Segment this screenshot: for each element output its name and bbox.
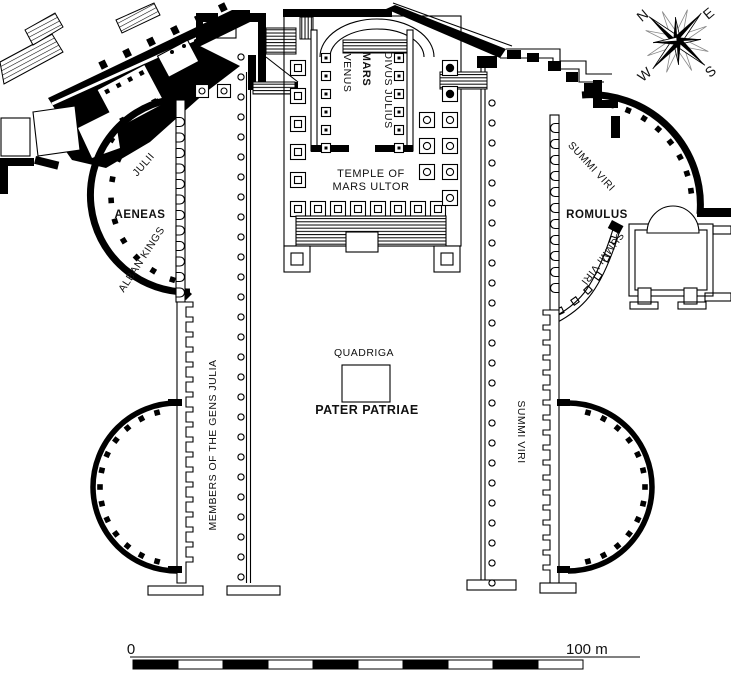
label-quadriga: QUADRIGA <box>334 347 394 359</box>
label-summi-viri-upper: SUMMI VIRI <box>565 139 617 194</box>
wall-base <box>540 583 576 593</box>
cult-statue-base <box>343 40 407 53</box>
label-julii: JULII <box>130 151 157 179</box>
compass-rose <box>646 10 709 73</box>
exedra-niches <box>97 409 160 565</box>
wall-dash <box>566 72 578 82</box>
staircase <box>266 28 296 54</box>
exedra-niches <box>584 409 647 565</box>
column-dot <box>204 54 208 58</box>
wall <box>0 158 34 166</box>
label-venus: VENUS <box>341 54 353 93</box>
label-summi-viri-lower: SUMMI VIRI <box>578 229 626 287</box>
wall-base <box>148 586 203 595</box>
scale-end-label: 100 m <box>566 641 608 658</box>
label-gens-julia: MEMBERS OF THE GENS JULIA <box>207 360 219 531</box>
niched-wall <box>177 302 193 583</box>
scale-bar-segments <box>133 660 583 669</box>
hatched-structure <box>116 3 160 33</box>
label-pater-patriae: PATER PATRIAE <box>315 403 419 417</box>
compass-west-label: W <box>634 63 655 84</box>
altar <box>346 232 378 252</box>
label-aeneas: AENEAS <box>115 209 166 221</box>
room <box>1 118 30 156</box>
wall <box>697 208 731 217</box>
temple-of-mars-ultor <box>283 9 487 272</box>
northwest-building-complex <box>0 2 250 194</box>
forum-augustus-plan: VENUS MARS DIVUS JULIUS TEMPLE OF MARS U… <box>0 0 731 673</box>
room <box>33 106 80 156</box>
corner-pedestal <box>284 246 310 272</box>
label-divus-julius: DIVUS JULIUS <box>382 51 394 128</box>
label-summi-viri-portico: SUMMI VIRI <box>515 400 527 463</box>
central-monument <box>342 365 390 402</box>
scale-start-label: 0 <box>127 641 135 658</box>
niched-wall <box>543 310 559 583</box>
quadriga-base <box>342 365 390 402</box>
corner-pedestal <box>434 246 460 272</box>
west-niched-wall <box>93 100 203 595</box>
colonnade-base <box>227 586 280 595</box>
apse <box>647 206 699 233</box>
compass-north-label: N <box>633 6 651 25</box>
wall-dash <box>507 50 521 59</box>
label-temple-line2: MARS ULTOR <box>332 181 409 193</box>
label-romulus: ROMULUS <box>566 209 628 221</box>
west-colonnade <box>227 54 295 595</box>
column-dot <box>170 50 174 54</box>
scale-bar <box>130 657 640 669</box>
colonnade-columns <box>238 54 244 580</box>
column-dot <box>182 44 186 48</box>
staircase <box>253 82 295 94</box>
wall-dash <box>527 53 539 62</box>
wall <box>0 166 8 194</box>
exedra-wall <box>582 95 700 214</box>
cella-wall <box>407 30 413 151</box>
colonnade-columns <box>489 100 495 586</box>
wall-dash <box>548 61 561 71</box>
label-mars: MARS <box>360 52 372 86</box>
label-temple-line1: TEMPLE OF <box>337 168 405 180</box>
east-niched-wall <box>540 115 652 593</box>
east-colonnade <box>467 56 516 590</box>
compass-east-label: E <box>700 4 717 22</box>
plan-drawing: VENUS MARS DIVUS JULIUS TEMPLE OF MARS U… <box>0 0 731 673</box>
rear-wall <box>283 9 392 17</box>
compass-south-label: S <box>702 62 719 80</box>
wall <box>34 156 59 170</box>
southeast-exedra-wall <box>568 403 652 571</box>
cella-wall <box>311 30 317 151</box>
southwest-exedra-wall <box>93 403 177 571</box>
hall-of-the-colossus <box>629 206 731 309</box>
